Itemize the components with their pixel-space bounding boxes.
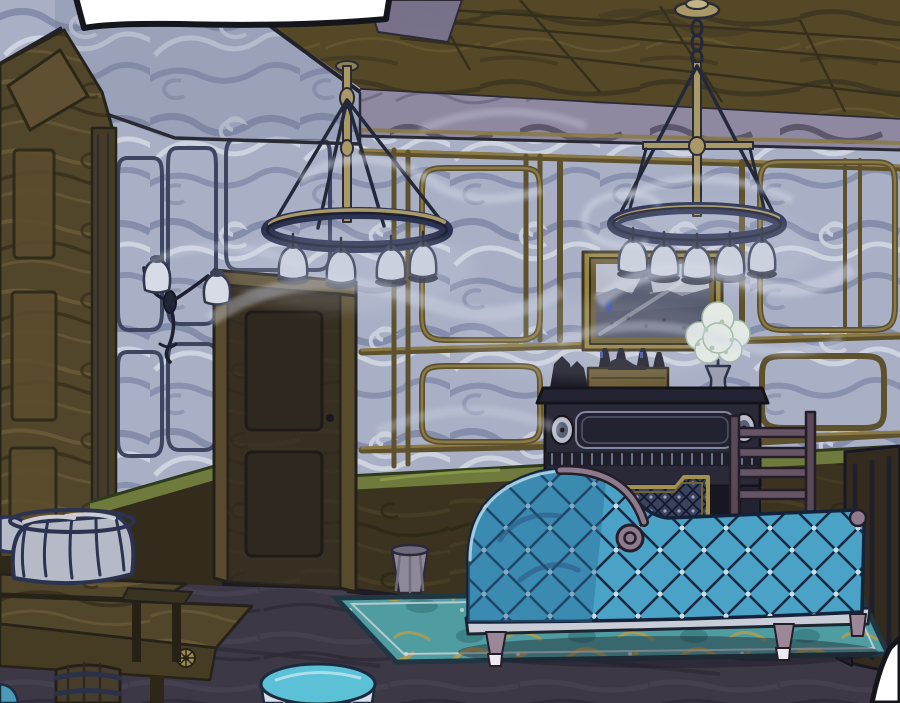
comic-panel: [0, 0, 900, 703]
waste-bin: [392, 545, 428, 593]
round-stool: [261, 664, 375, 703]
parlor-scene: [0, 0, 900, 703]
speech-bubble: [75, 0, 390, 28]
wire-basket: [10, 510, 134, 583]
wooden-door: [214, 270, 356, 592]
barrel: [56, 663, 120, 703]
